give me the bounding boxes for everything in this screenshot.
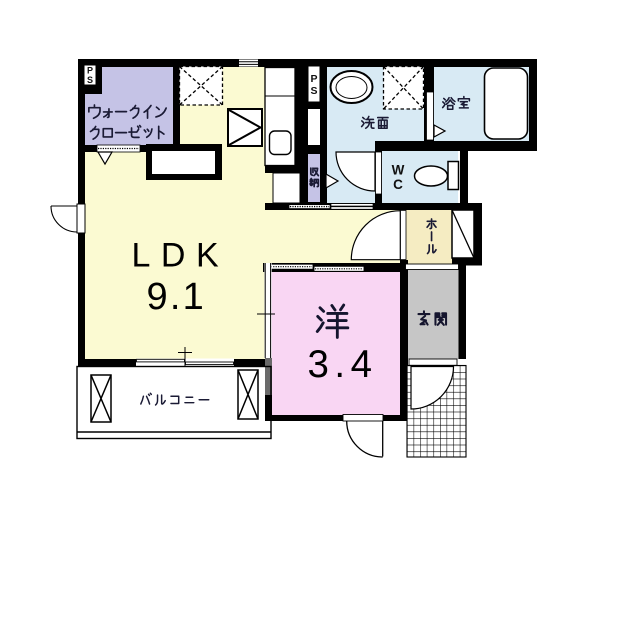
svg-text:P: P xyxy=(87,66,93,76)
svg-text:LDK: LDK xyxy=(132,237,230,275)
svg-text:S: S xyxy=(87,75,93,85)
svg-text:S: S xyxy=(310,85,317,97)
svg-text:P: P xyxy=(310,73,317,85)
svg-text:9.1: 9.1 xyxy=(147,276,206,318)
svg-text:C: C xyxy=(393,177,403,192)
svg-text:3.4: 3.4 xyxy=(308,343,378,386)
svg-text:W: W xyxy=(392,163,405,178)
